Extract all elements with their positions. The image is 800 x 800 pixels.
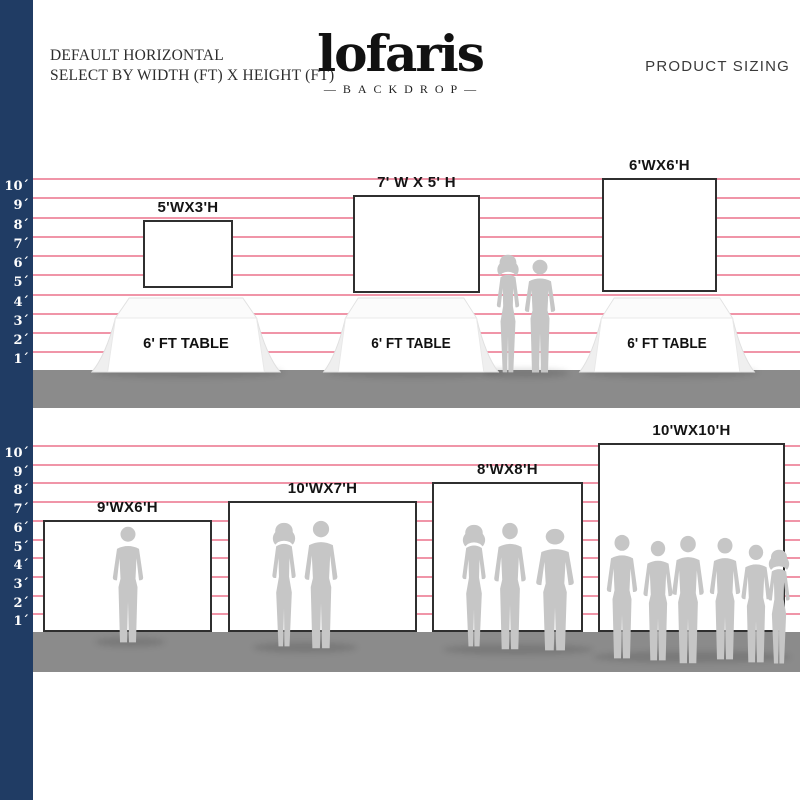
ruler-foot-label: 1´ [0,352,29,367]
logo-wordmark: lofaris [280,28,520,80]
backdrop-size-label: 6'WX6'H [562,157,757,174]
backdrop-size-label: 9'WX6'H [3,499,252,516]
page-title: PRODUCT SIZING [630,58,790,75]
backdrop-size-label: 10'WX7'H [188,480,457,497]
logo-tagline: —BACKDROP— [280,82,520,97]
backdrop-rectangle [602,178,717,292]
ruler-foot-label: 8´ [0,483,29,498]
product-sizing-poster: DEFAULT HORIZONTAL SELECT BY WIDTH (FT) … [0,0,800,800]
backdrop-rectangle [353,195,480,293]
ruler-foot-label: 2´ [0,333,29,348]
ruler-bar [0,0,33,800]
backdrop-size-label: 7' W X 5' H [313,174,520,191]
ruler-foot-label: 7´ [0,502,29,517]
table-label: 6' FT TABLE [371,335,451,352]
ruler-foot-label: 2´ [0,596,29,611]
ruler-foot-label: 3´ [0,577,29,592]
ruler-foot-label: 9´ [0,198,29,213]
brand-logo: lofaris —BACKDROP— [280,28,520,97]
tabletop [345,298,476,318]
ruler-foot-label: 3´ [0,314,29,329]
ruler-foot-label: 6´ [0,256,29,271]
person-silhouette [758,549,800,665]
ruler-foot-label: 8´ [0,218,29,233]
backdrop-size-label: 8'WX8'H [392,461,623,478]
ruler-foot-label: 10´ [0,179,29,194]
ruler-foot-label: 10´ [0,446,29,461]
ruler-foot-label: 5´ [0,540,29,555]
ruler-foot-label: 7´ [0,237,29,252]
ruler-foot-label: 9´ [0,465,29,480]
tabletop [601,298,732,318]
table-label: 6' FT TABLE [627,335,707,352]
ruler-foot-label: 4´ [0,295,29,310]
person-silhouette [515,259,565,374]
tabletop [115,298,256,318]
ruler-foot-label: 5´ [0,275,29,290]
ruler-foot-label: 6´ [0,521,29,536]
table-with-tablecloth: 6' FT TABLE [88,296,284,376]
table-with-tablecloth: 6' FT TABLE [576,296,758,376]
person-silhouette [103,526,153,644]
ruler-foot-label: 1´ [0,614,29,629]
person-silhouette [294,520,348,650]
backdrop-rectangle [143,220,233,288]
person-silhouette [524,528,586,652]
table-label: 6' FT TABLE [143,336,229,352]
backdrop-size-label: 5'WX3'H [103,199,273,216]
ruler-foot-label: 4´ [0,558,29,573]
table-with-tablecloth: 6' FT TABLE [320,296,502,376]
backdrop-size-label: 10'WX10'H [558,422,800,439]
